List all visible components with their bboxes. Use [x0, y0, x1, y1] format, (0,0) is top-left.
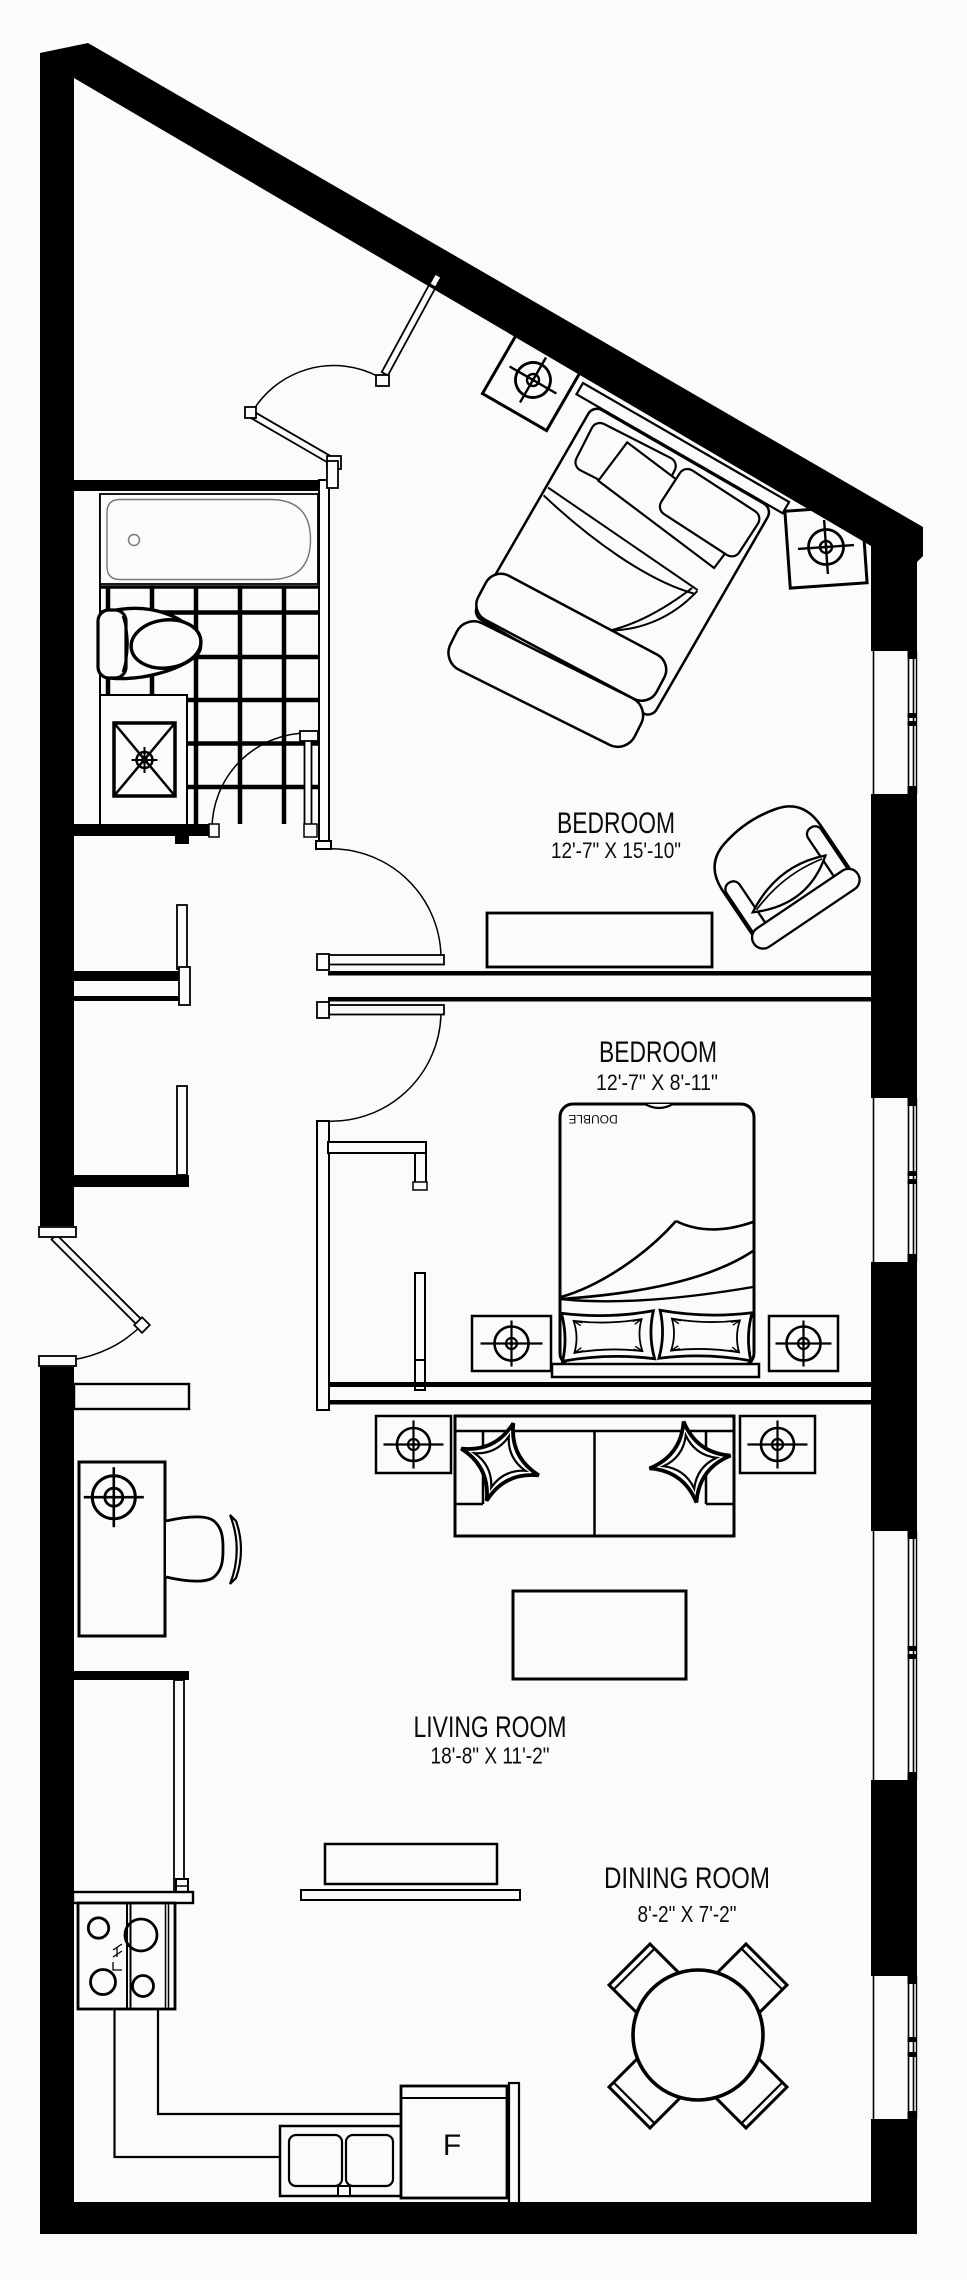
svg-text:F: F: [443, 2129, 461, 2162]
svg-text:12'-7" X 15'-10": 12'-7" X 15'-10": [551, 838, 681, 863]
svg-text:DINING ROOM: DINING ROOM: [604, 1862, 770, 1895]
svg-text:LIVING ROOM: LIVING ROOM: [414, 1711, 567, 1744]
svg-text:18'-8" X 11'-2": 18'-8" X 11'-2": [431, 1743, 550, 1769]
svg-text:12'-7" X 8'-11": 12'-7" X 8'-11": [596, 1070, 718, 1095]
svg-text:BEDROOM: BEDROOM: [599, 1036, 717, 1069]
svg-text:8'-2" X 7'-2": 8'-2" X 7'-2": [638, 1901, 737, 1927]
svg-text:DOUBLE: DOUBLE: [568, 1112, 617, 1126]
svg-text:BEDROOM: BEDROOM: [557, 807, 675, 840]
